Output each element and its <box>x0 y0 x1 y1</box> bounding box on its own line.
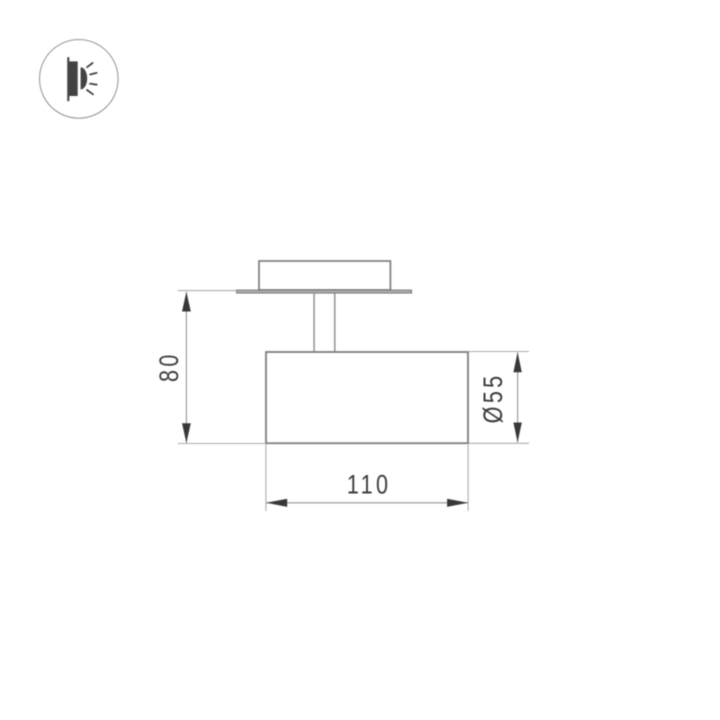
svg-text:80: 80 <box>155 351 185 382</box>
svg-text:Ø55: Ø55 <box>479 372 509 423</box>
svg-text:110: 110 <box>347 470 392 500</box>
